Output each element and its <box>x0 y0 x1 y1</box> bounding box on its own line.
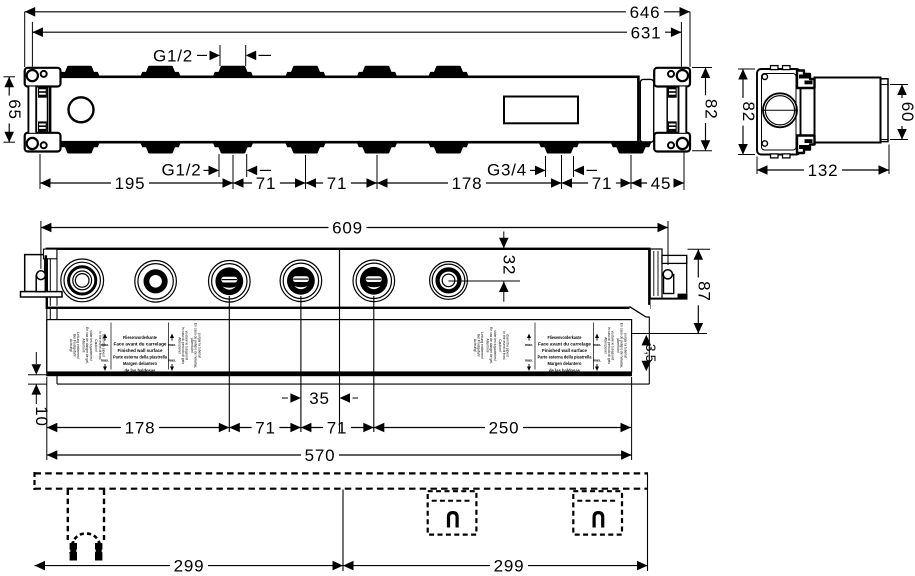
svg-text:max.: max. <box>168 359 176 363</box>
svg-text:¡Atención!: ¡Atención! <box>190 338 194 353</box>
svg-text:G1/2: G1/2 <box>153 47 193 66</box>
svg-text:71: 71 <box>327 419 348 438</box>
svg-text:Margen delantero: Margen delantero <box>123 361 157 366</box>
svg-text:vider les tuyauteries!: vider les tuyauteries! <box>89 330 93 360</box>
svg-text:646: 646 <box>630 3 661 22</box>
svg-text:71: 71 <box>255 419 276 438</box>
svg-text:32: 32 <box>500 255 519 276</box>
svg-text:vuotare le tubazioni!: vuotare le tubazioni! <box>185 331 189 361</box>
svg-text:71: 71 <box>592 174 613 193</box>
svg-text:45: 45 <box>651 174 672 193</box>
svg-text:609: 609 <box>332 219 363 238</box>
svg-text:299: 299 <box>174 557 205 576</box>
svg-text:82: 82 <box>702 99 721 120</box>
svg-text:3,5: 3,5 <box>643 344 658 362</box>
svg-text:71: 71 <box>256 174 277 193</box>
svg-text:Achtung!: Achtung! <box>69 339 73 352</box>
svg-text:Caution!: Caution! <box>498 339 502 351</box>
svg-text:Leitung entleeren!: Leitung entleeren! <box>480 332 484 358</box>
svg-text:Leitung entleeren!: Leitung entleeren! <box>76 332 80 358</box>
svg-text:35: 35 <box>309 389 330 408</box>
svg-text:max.: max. <box>593 343 601 347</box>
svg-text:purgar la tuberia!: purgar la tuberia! <box>197 333 201 358</box>
svg-text:Achtung!: Achtung! <box>473 339 477 352</box>
svg-text:Bei Frostgefahr: Bei Frostgefahr <box>73 334 77 357</box>
svg-text:max.: max. <box>168 343 176 347</box>
svg-text:G3/4: G3/4 <box>487 161 527 180</box>
svg-text:Caution!: Caution! <box>94 339 98 351</box>
svg-text:En cas de danger de gel,: En cas de danger de gel, <box>85 327 89 364</box>
svg-text:250: 250 <box>489 419 520 438</box>
svg-text:Finished wall surface: Finished wall surface <box>542 348 587 353</box>
svg-text:Attenzione!: Attenzione! <box>604 337 608 354</box>
svg-text:71: 71 <box>327 174 348 193</box>
svg-text:In the event of frost: In the event of frost <box>502 331 506 359</box>
svg-text:570: 570 <box>305 446 336 465</box>
svg-text:max.: max. <box>593 359 601 363</box>
svg-text:10: 10 <box>32 406 51 427</box>
svg-text:Bei Frostgefahr: Bei Frostgefahr <box>477 334 481 357</box>
svg-text:Attenzione!: Attenzione! <box>178 337 182 354</box>
svg-text:En caso de peligro de heladas,: En caso de peligro de heladas, <box>194 323 198 368</box>
svg-text:drain the pipes!: drain the pipes! <box>505 334 509 357</box>
svg-text:max.: max. <box>101 359 109 363</box>
svg-text:60: 60 <box>898 102 915 123</box>
svg-text:87: 87 <box>694 281 713 302</box>
svg-text:Margen delantero: Margen delantero <box>548 361 582 366</box>
svg-text:Fliesenvorderkante: Fliesenvorderkante <box>548 335 582 340</box>
svg-text:de las baldosas: de las baldosas <box>125 368 156 373</box>
svg-text:Attention!: Attention! <box>82 339 86 353</box>
svg-text:max.: max. <box>525 343 533 347</box>
svg-text:¡Atención!: ¡Atención! <box>616 338 620 353</box>
svg-text:Finished wall surface: Finished wall surface <box>118 348 163 353</box>
svg-text:82: 82 <box>739 102 758 123</box>
svg-text:Face avant du carrelage: Face avant du carrelage <box>114 341 167 346</box>
svg-text:178: 178 <box>125 419 156 438</box>
svg-text:max.: max. <box>101 343 109 347</box>
svg-text:vider les tuyauteries!: vider les tuyauteries! <box>493 330 497 360</box>
svg-text:de las baldosas: de las baldosas <box>549 368 580 373</box>
svg-text:Face avant du carrelage: Face avant du carrelage <box>538 341 591 346</box>
svg-text:Attention!: Attention! <box>486 339 490 353</box>
svg-text:Parte esterna della piastrella: Parte esterna della piastrella <box>538 355 592 360</box>
svg-text:En cas de danger de gel,: En cas de danger de gel, <box>489 327 493 364</box>
svg-text:purgar la tuberia!: purgar la tuberia! <box>623 333 627 358</box>
svg-text:G1/2: G1/2 <box>161 161 201 180</box>
svg-text:Fliesenvorderkante: Fliesenvorderkante <box>123 335 157 340</box>
svg-text:max.: max. <box>525 359 533 363</box>
svg-text:631: 631 <box>631 23 662 42</box>
svg-text:Parte esterna della piastrella: Parte esterna della piastrella <box>113 355 167 360</box>
svg-text:In caso di pericolo di gelo: In caso di pericolo di gelo <box>181 327 185 364</box>
svg-text:vuotare le tubazioni!: vuotare le tubazioni! <box>611 331 615 361</box>
svg-text:299: 299 <box>494 557 525 576</box>
svg-text:132: 132 <box>808 161 839 180</box>
svg-text:En caso de peligro de heladas,: En caso de peligro de heladas, <box>620 323 624 368</box>
svg-text:178: 178 <box>452 174 483 193</box>
svg-text:195: 195 <box>115 174 146 193</box>
svg-text:65: 65 <box>5 99 24 120</box>
svg-text:In caso di pericolo di gelo: In caso di pericolo di gelo <box>607 327 611 364</box>
